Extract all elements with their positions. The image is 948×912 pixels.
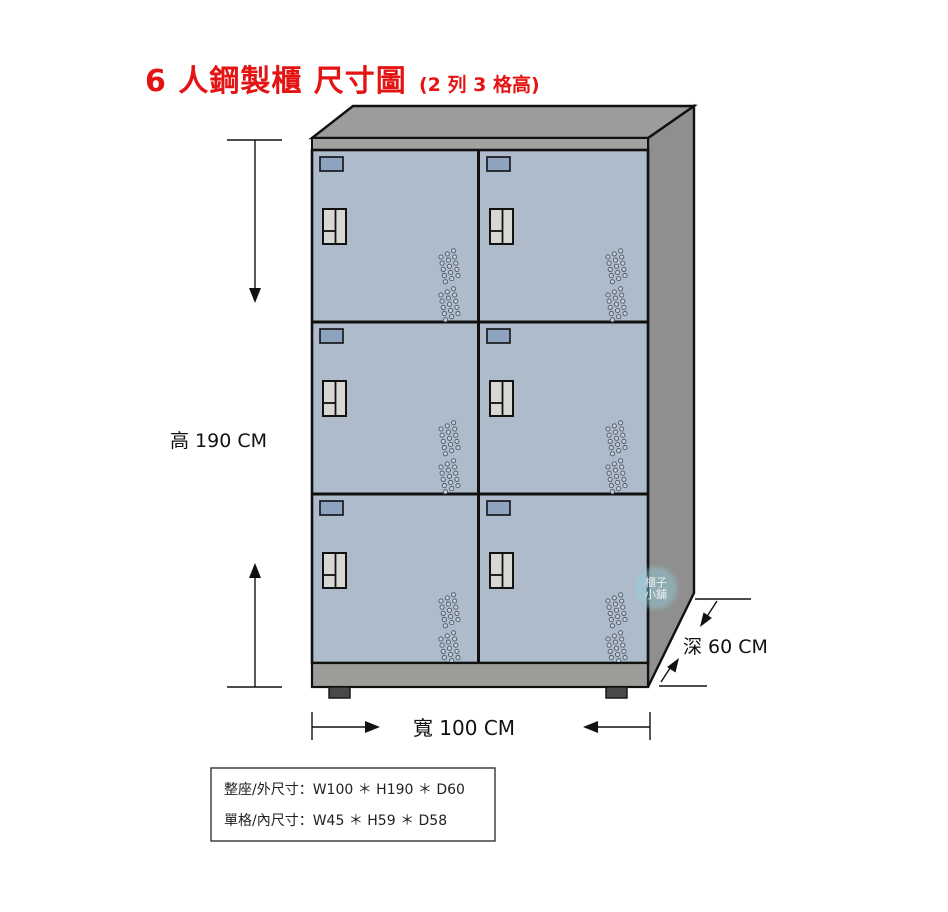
- width-dimension: 寬 100 CM: [312, 712, 650, 740]
- spec-line-inner: 單格/內尺寸：W45 ＊ H59 ＊ D58: [224, 813, 447, 829]
- depth-arrow-lower-line: [661, 665, 672, 682]
- locker-dimension-diagram: 6 人鋼製櫃 尺寸圖 (2 列 3 格高) 櫃子 小舖: [0, 0, 948, 912]
- width-arrowhead-left: [583, 721, 598, 733]
- page-title: 6 人鋼製櫃 尺寸圖: [145, 64, 407, 99]
- width-label: 寬 100 CM: [413, 716, 515, 740]
- height-arrowhead-up: [249, 563, 261, 578]
- locker-cabinet: [312, 106, 694, 698]
- cabinet-base: [312, 663, 648, 687]
- cabinet-top-fascia: [312, 138, 648, 150]
- cabinet-foot-right: [606, 687, 627, 698]
- depth-label: 深 60 CM: [683, 636, 768, 658]
- page-title-suffix: (2 列 3 格高): [419, 73, 540, 96]
- cabinet-foot-left: [329, 687, 350, 698]
- spec-box: 整座/外尺寸：W100 ＊ H190 ＊ D60 單格/內尺寸：W45 ＊ H5…: [211, 768, 495, 841]
- depth-arrowhead-downleft: [700, 612, 712, 627]
- watermark-text-line1: 櫃子: [645, 575, 667, 589]
- height-arrowhead-down: [249, 288, 261, 303]
- height-label: 高 190 CM: [170, 430, 267, 452]
- spec-line-outer: 整座/外尺寸：W100 ＊ H190 ＊ D60: [224, 782, 465, 798]
- diagram-page: 6 人鋼製櫃 尺寸圖 (2 列 3 格高) 櫃子 小舖: [0, 0, 948, 912]
- height-dimension: 高 190 CM: [170, 140, 282, 687]
- spec-box-border: [211, 768, 495, 841]
- cabinet-top-face: [312, 106, 694, 138]
- shop-watermark: 櫃子 小舖: [635, 567, 677, 609]
- width-arrowhead-right: [365, 721, 380, 733]
- watermark-text-line2: 小舖: [645, 587, 667, 601]
